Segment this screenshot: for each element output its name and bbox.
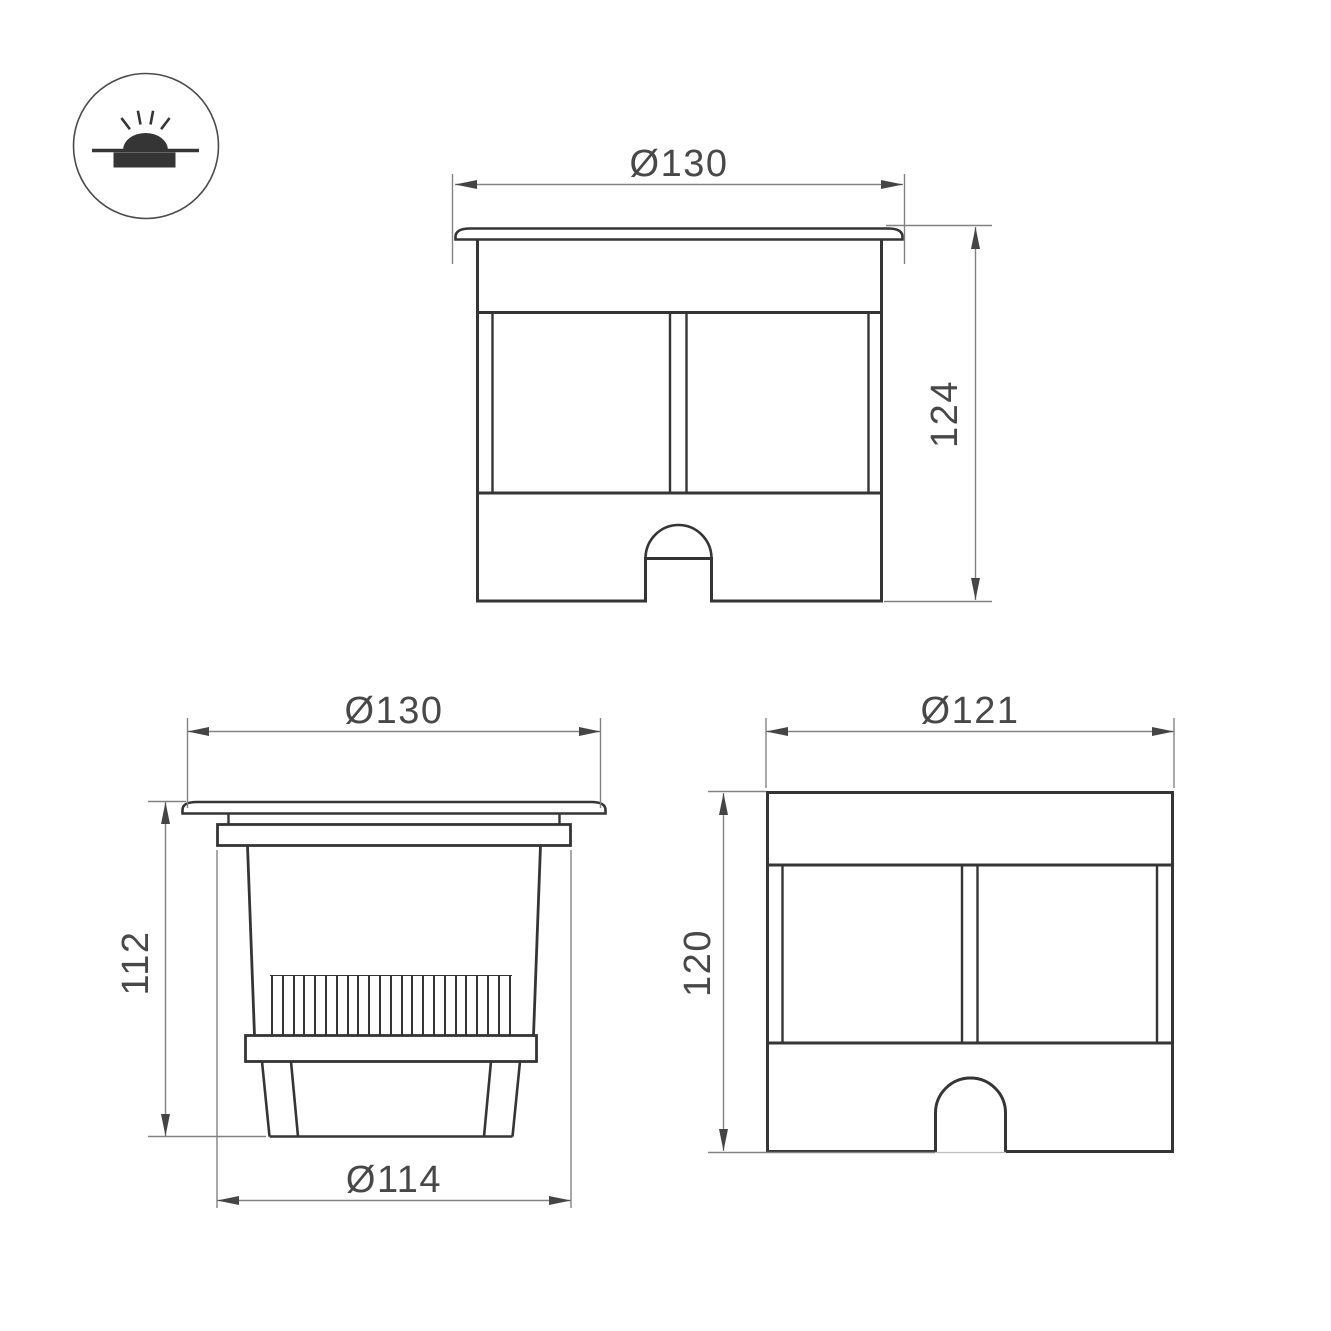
technical-drawing: Ø130 124 Ø130 112 Ø114 xyxy=(0,0,1331,1331)
dim-label-section-bottom-diameter: Ø114 xyxy=(346,1159,442,1201)
mounting-plate xyxy=(246,1036,537,1062)
dim-label-section-top-diameter: Ø130 xyxy=(345,690,444,732)
dim-label-body-height: 120 xyxy=(677,929,719,997)
dim-label-section-height: 112 xyxy=(115,930,157,995)
dim-label-front-height: 124 xyxy=(924,380,966,448)
recessed-body xyxy=(114,153,176,168)
embed-collar xyxy=(218,825,571,846)
flange-cap xyxy=(456,229,903,240)
dim-label-body-diameter: Ø121 xyxy=(921,690,1020,732)
technical-drawing-canvas: Ø130 124 Ø130 112 Ø114 xyxy=(0,0,1331,1331)
dim-label-front-diameter: Ø130 xyxy=(630,143,729,185)
flange-cap xyxy=(183,802,606,814)
